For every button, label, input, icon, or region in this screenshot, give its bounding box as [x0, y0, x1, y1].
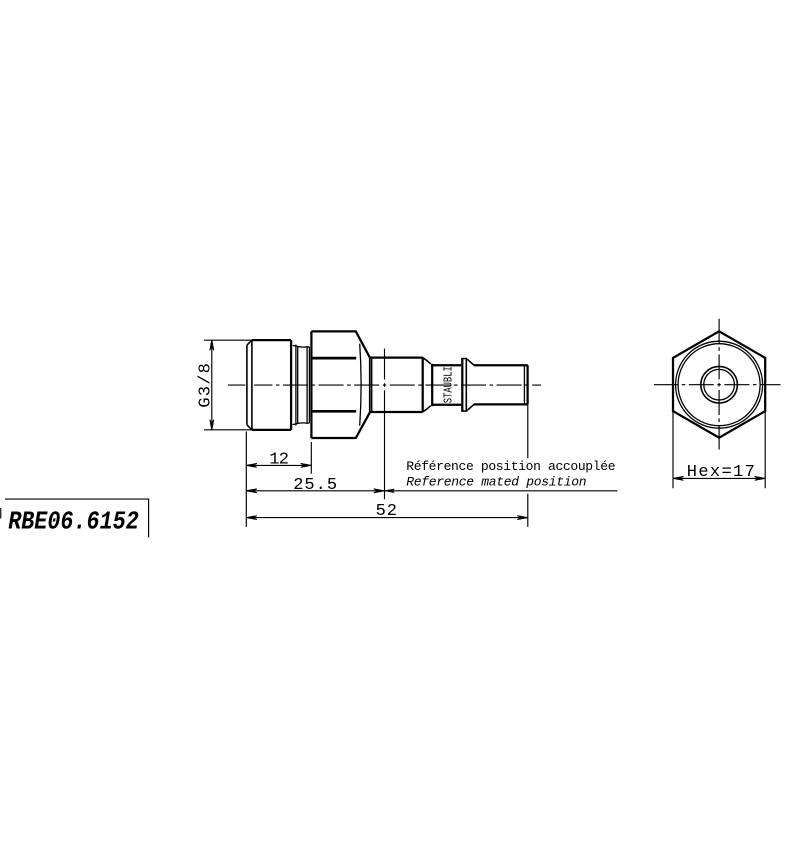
svg-text:STAUBLI: STAUBLI [442, 366, 456, 403]
svg-text:G3/8: G3/8 [196, 363, 215, 408]
svg-text:Reference mated position: Reference mated position [406, 475, 586, 490]
svg-text:Hex=17: Hex=17 [687, 463, 755, 482]
svg-text:12: 12 [269, 450, 289, 469]
svg-text:Référence position accouplée: Référence position accouplée [406, 459, 615, 474]
svg-text:RBE06.6152: RBE06.6152 [8, 507, 139, 537]
svg-text:52: 52 [376, 502, 397, 521]
svg-text:25.5: 25.5 [293, 476, 337, 495]
